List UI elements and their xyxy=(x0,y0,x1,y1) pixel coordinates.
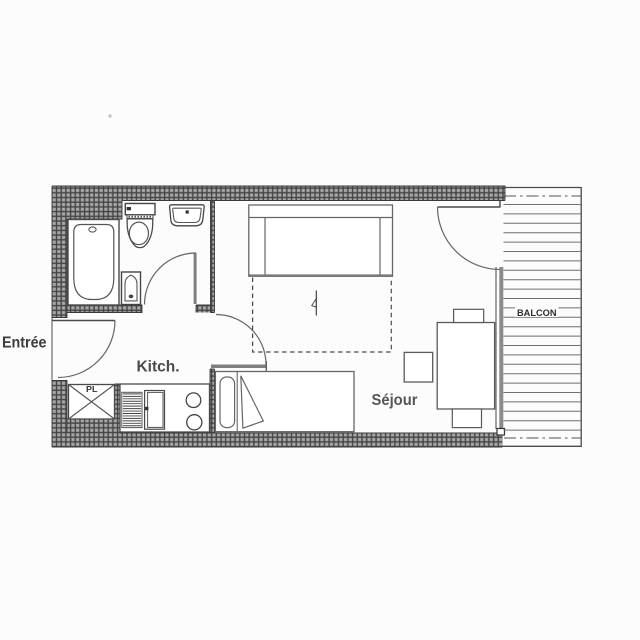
svg-text:PL: PL xyxy=(86,384,98,394)
svg-text:Kitch.: Kitch. xyxy=(137,359,180,376)
svg-text:Séjour: Séjour xyxy=(372,392,418,409)
svg-text:Entrée: Entrée xyxy=(2,335,47,352)
svg-text:BALCON: BALCON xyxy=(517,308,557,319)
